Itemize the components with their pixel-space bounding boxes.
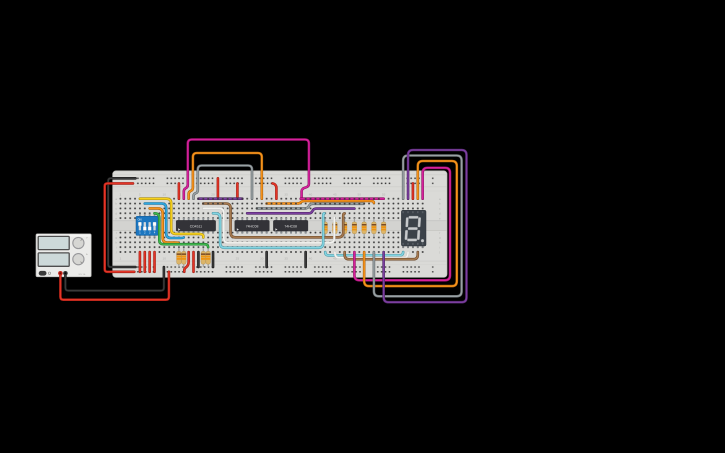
svg-text:45: 45 [333,192,337,196]
svg-text:74HC08: 74HC08 [246,225,259,229]
svg-text:f: f [439,231,440,235]
svg-text:55: 55 [382,192,386,196]
svg-text:10: 10 [163,192,167,196]
svg-text:40: 40 [309,256,313,260]
svg-text:30: 30 [260,256,264,260]
svg-text:35: 35 [284,256,288,260]
svg-text:10: 10 [163,256,167,260]
svg-text:20: 20 [211,192,215,196]
svg-text:1: 1 [120,256,122,260]
svg-text:50: 50 [358,192,362,196]
svg-text:1: 1 [120,192,122,196]
svg-text:CD4511: CD4511 [190,225,202,229]
svg-text:40: 40 [309,192,313,196]
svg-text:ON: ON [138,218,142,222]
svg-text:35: 35 [284,192,288,196]
svg-text:25: 25 [236,256,240,260]
svg-text:30V 3A: 30V 3A [78,273,86,276]
svg-text:74HC08: 74HC08 [284,225,297,229]
svg-text:5: 5 [139,192,141,196]
